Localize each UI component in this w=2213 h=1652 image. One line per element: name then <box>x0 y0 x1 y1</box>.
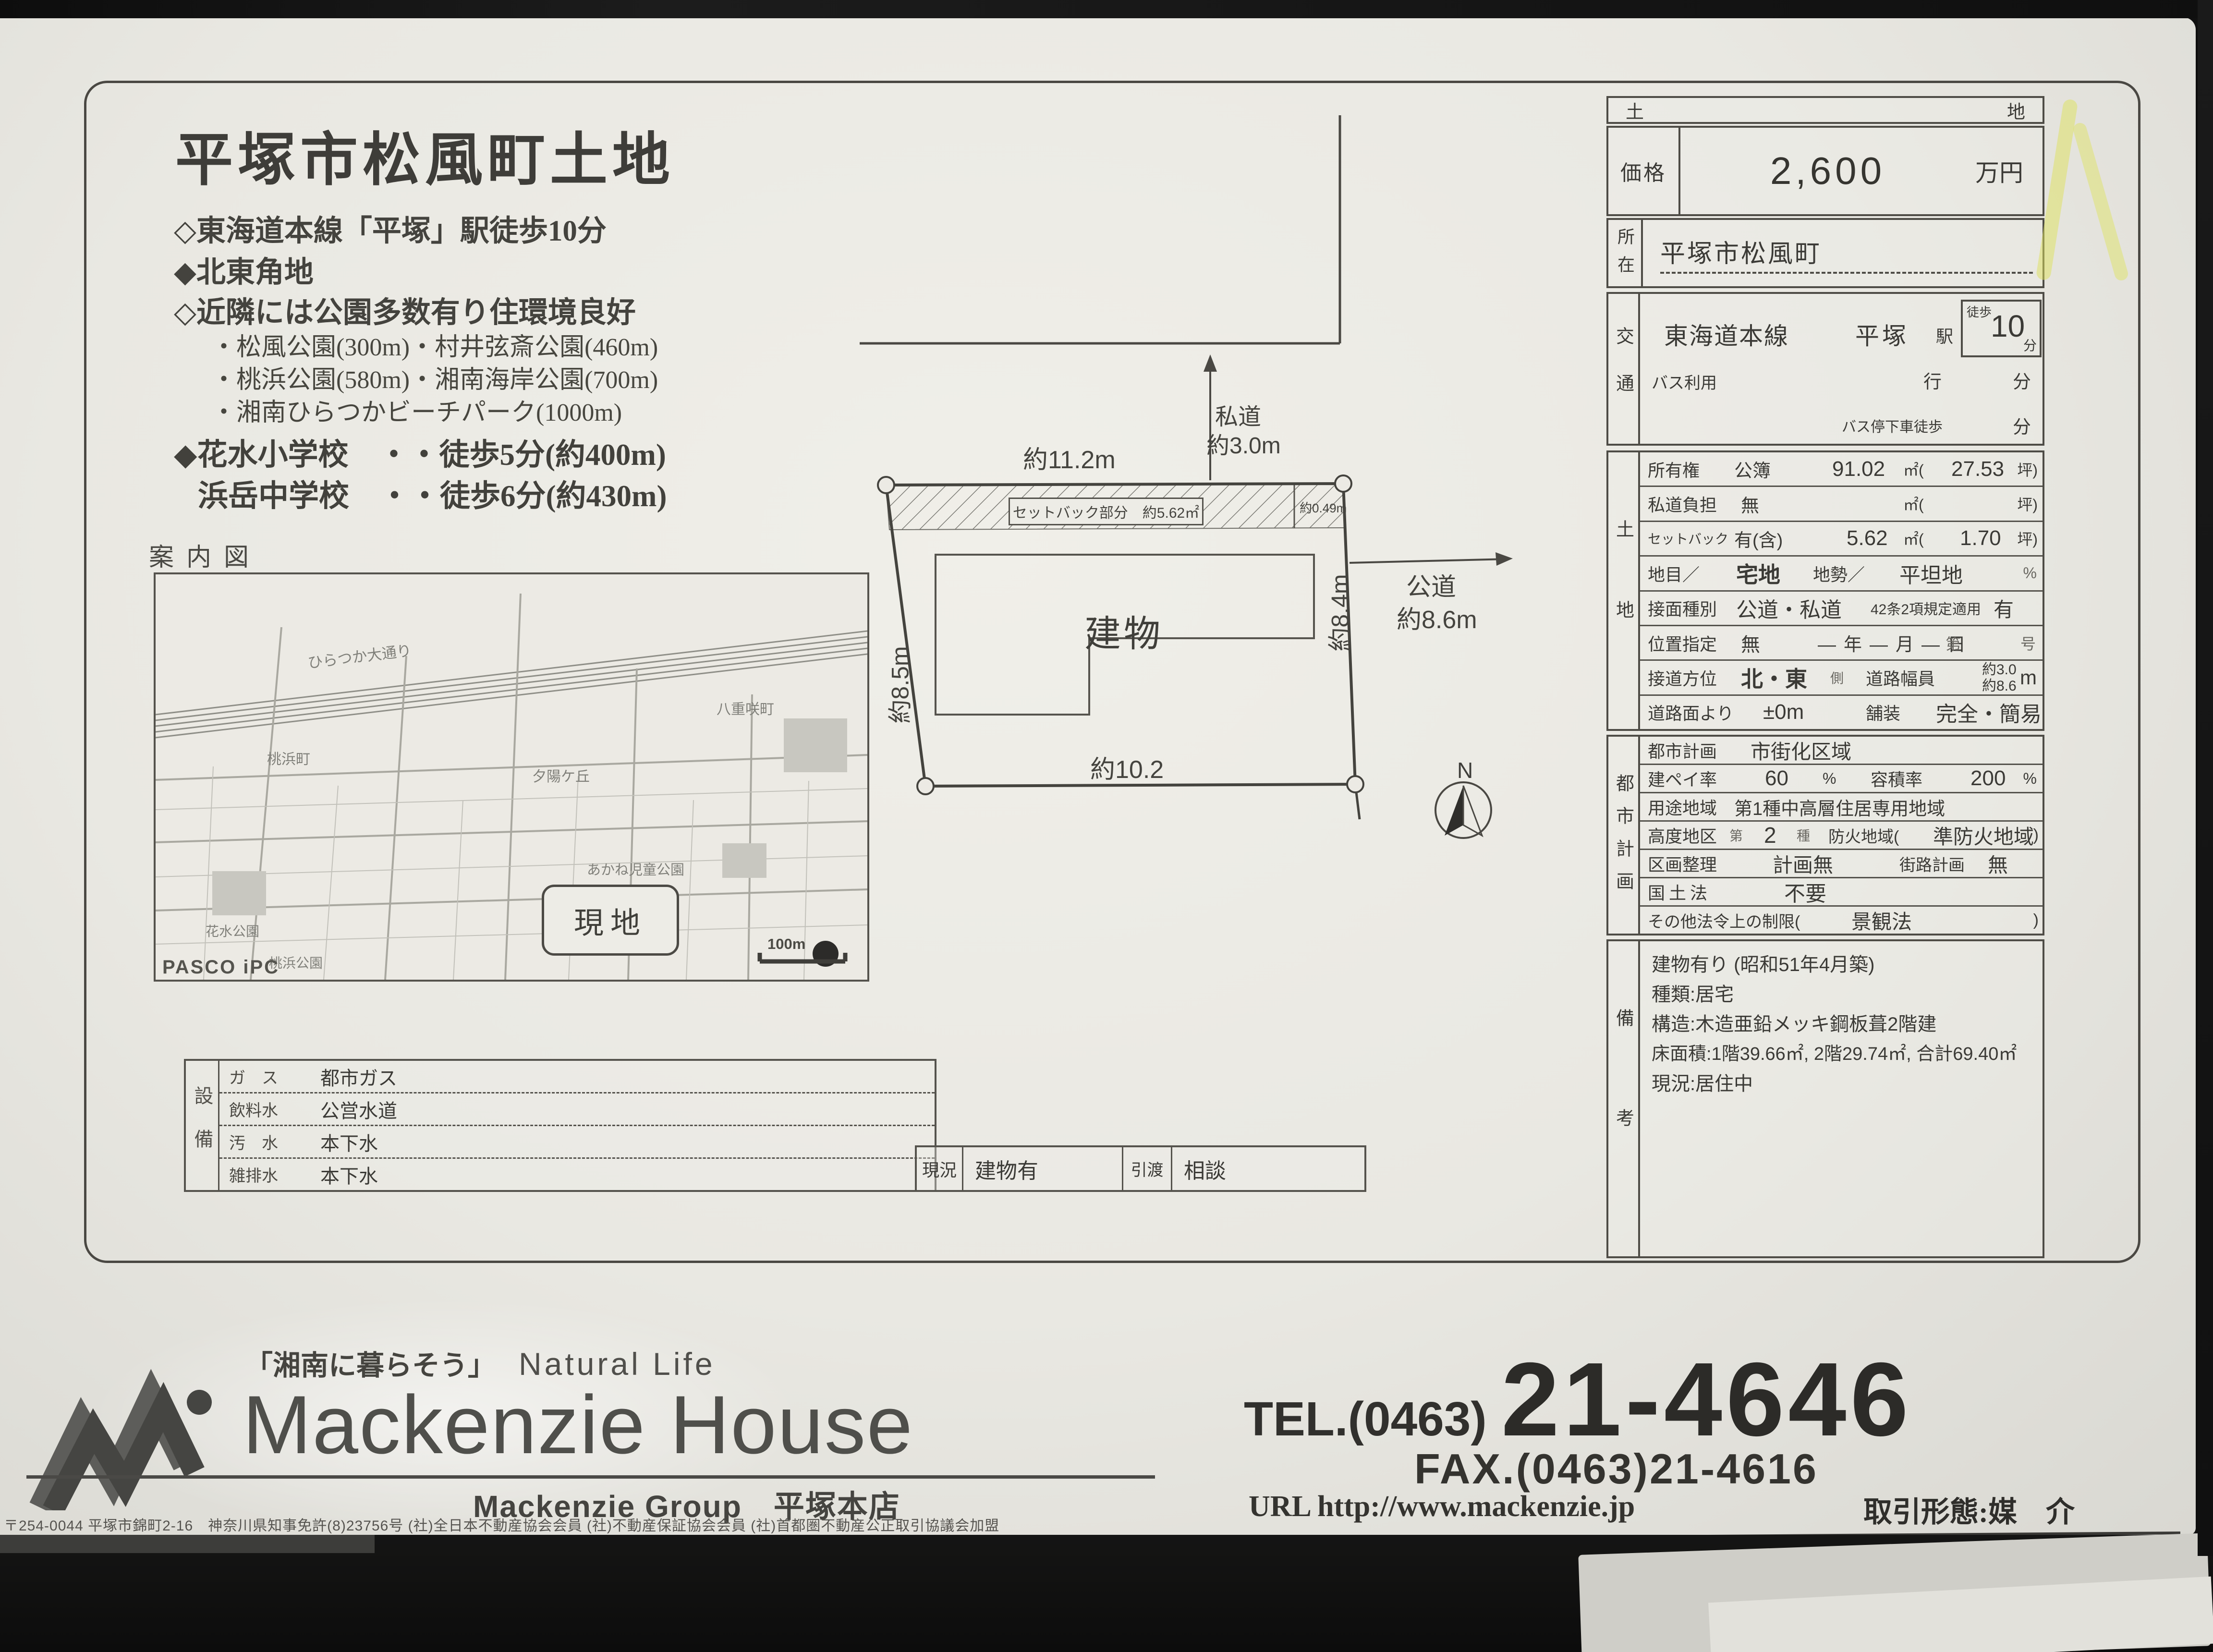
map-scale-label: 100m <box>767 935 805 953</box>
city-plan-table: 都市計画 都市計画 市街化区域 建ペイ率 60 % 容積率 200 % 用途地域… <box>1606 735 2044 935</box>
location-row: 所在 平塚市松風町 <box>1606 218 2044 288</box>
access-station: 平塚 <box>1855 317 1909 352</box>
status-row: 現況 建物有 引渡 相談 <box>915 1145 1366 1192</box>
cp-r6-value: 不要 <box>1784 876 1826 907</box>
bus-minutes-unit: 分 <box>2013 367 2031 393</box>
land-r1-type: 公簿 <box>1734 456 1771 482</box>
cp-r1-label: 都市計画 <box>1648 738 1717 763</box>
cp-r4-close-paren: ) <box>2033 826 2039 845</box>
private-road-width: 約3.0m <box>1206 426 1281 460</box>
access-station-suffix: 駅 <box>1936 323 1953 348</box>
land-r4-terrain: 平坦地 <box>1899 558 1963 589</box>
cp-r7-value: 景観法 <box>1851 906 1912 935</box>
land-r2-value: 無 <box>1741 491 1759 517</box>
phone-block: TEL.(0463) 21-4646 <box>1244 1340 1912 1460</box>
land-r6-no-suffix: 号 <box>2020 632 2036 654</box>
cp-r1-value: 市街化区域 <box>1751 736 1851 765</box>
land-r1-tsubo: 27.53 <box>1951 457 2004 481</box>
site-plan-drawing: N <box>840 96 1633 864</box>
land-r4-label: 地目／ <box>1648 561 1700 586</box>
location-label: 所在 <box>1608 220 1643 286</box>
bullet-parks: ◇近隣には公園多数有り住環境良好 <box>174 288 636 331</box>
land-r2-sqm-unit: ㎡( <box>1903 493 1924 515</box>
land-r7-widths: 約3.0約8.6 <box>1982 662 2017 694</box>
cp-r6-label: 国土法 <box>1648 879 1711 904</box>
building-label: 建物 <box>1047 604 1201 657</box>
cp-r4-shu: 種 <box>1797 826 1810 845</box>
land-r6-label: 位置指定 <box>1648 631 1717 656</box>
land-r7-direction: 北・東 <box>1741 662 1807 693</box>
utility-water-label: 飲料水 <box>229 1097 278 1121</box>
city-plan-label: 都市計画 <box>1608 737 1640 934</box>
dim-right-depth: 約8.4m <box>1321 574 1356 651</box>
park-list-2: ・桃浜公園(580m)・湘南海岸公園(700m) <box>211 359 658 395</box>
section-char-left: 土 <box>1626 97 1644 123</box>
cp-r5-value: 計画無 <box>1773 849 1833 878</box>
private-road-arrowhead <box>1204 354 1217 372</box>
section-char-right: 地 <box>2007 97 2025 123</box>
land-r8-paving: 完全・簡易 <box>1936 697 2042 728</box>
city-plan-row-other-laws: その他法令上の制限( 景観法 ) <box>1640 907 2043 934</box>
land-r3-tsubo-unit: 坪) <box>2017 527 2038 549</box>
railway-lines <box>156 631 867 738</box>
map-park-hanamizu: 花水公園 <box>206 921 259 940</box>
city-plan-row-ratios: 建ペイ率 60 % 容積率 200 % <box>1640 765 2043 793</box>
map-district-momohama: 桃浜町 <box>267 747 310 768</box>
cp-r2-bcr: 60 <box>1765 766 1788 790</box>
cp-r7-open: その他法令上の制限( <box>1648 909 1800 932</box>
bus-stop-walk-label: バス停下車徒歩 <box>1842 415 1943 436</box>
land-row-setback: セットバック 有(含) 5.62 ㎡( 1.70 坪) <box>1640 522 2043 557</box>
land-row-position-designation: 位置指定 無 ―年―月―日 第 号 <box>1640 626 2043 661</box>
tel-prefix: TEL.(0463) <box>1244 1392 1487 1447</box>
company-name: Mackenzie House <box>243 1377 913 1472</box>
land-r1-sqm-unit: ㎡( <box>1903 458 1924 480</box>
land-r1-tsubo-unit: 坪) <box>2017 458 2038 480</box>
park-list-3: ・湘南ひらつかビーチパーク(1000m) <box>211 392 622 428</box>
cp-r4-fire-value: 準防火地域 <box>1933 821 2034 850</box>
public-road-arrowhead <box>1496 552 1513 566</box>
land-section-header: 土 地 <box>1606 96 2044 124</box>
status-handover-value: 相談 <box>1184 1154 1226 1184</box>
remarks-line-4: 床面積:1階39.66㎡, 2階29.74㎡, 合計69.40㎡ <box>1652 1039 2043 1069</box>
cp-r4-class: 2 <box>1764 822 1776 848</box>
city-plan-row-zone: 都市計画 市街化区域 <box>1640 737 2043 765</box>
walk-label: 徒歩 <box>1967 303 1992 320</box>
land-r4-percent: % <box>2023 564 2037 582</box>
land-r4-terrain-label: 地勢／ <box>1813 561 1865 586</box>
public-road-arrow-line <box>1350 559 1508 563</box>
land-r6-value: 無 <box>1741 629 1760 657</box>
land-row-road-direction: 接道方位 北・東 側 道路幅員 約3.0約8.6 m <box>1640 661 2043 695</box>
desk-top-edge <box>0 0 2213 18</box>
city-plan-row-height-fire: 高度地区 第 2 種 防火地域( 準防火地域 ) <box>1640 822 2043 850</box>
photo-of-real-estate-flyer: 平塚市松風町土地 ◇東海道本線「平塚」駅徒歩10分 ◆北東角地 ◇近隣には公園多… <box>0 0 2213 1652</box>
status-current-label: 現況 <box>922 1156 957 1181</box>
status-current-value: 建物有 <box>975 1154 1038 1184</box>
bus-stop-minutes-unit: 分 <box>2013 412 2031 438</box>
tel-number: 21-4646 <box>1501 1340 1912 1460</box>
school-junior-high: 浜岳中学校 ・・徒歩6分(約430m) <box>198 472 667 515</box>
price-unit: 万円 <box>1975 154 2023 188</box>
land-r5-applies: 有 <box>1994 594 2014 623</box>
city-plan-row-use-district: 用途地域 第1種中高層住居専用地域 <box>1640 793 2043 822</box>
price-value: 2,600 <box>1680 149 1975 193</box>
land-r3-tsubo: 1.70 <box>1960 526 2001 550</box>
paper-bottom-edge-reflection <box>0 1535 375 1553</box>
land-r1-label: 所有権 <box>1648 457 1700 482</box>
utility-sewage-label: 汚 水 <box>229 1130 278 1154</box>
land-r3-value: 有(含) <box>1734 525 1783 552</box>
compass-needle-outline <box>1463 786 1482 836</box>
desk-right-edge <box>2198 0 2213 1556</box>
land-r8-paving-label: 舗装 <box>1866 700 1900 725</box>
land-r4-category: 宅地 <box>1736 558 1780 589</box>
remarks-line-1: 建物有り (昭和51年4月築) <box>1652 950 2043 980</box>
cp-r5-street-label: 街路計画 <box>1899 852 1965 875</box>
setback-label-text: セットバック部分 約5.62㎡ <box>1013 501 1199 522</box>
dim-bottom-width: 約10.2 <box>1090 749 1164 785</box>
location-value: 平塚市松風町 <box>1660 233 1822 269</box>
price-label: 価格 <box>1620 156 1666 186</box>
land-r7-label: 接道方位 <box>1648 665 1717 690</box>
fax-number: FAX.(0463)21-4616 <box>1414 1445 1818 1494</box>
utilities-table: 設備 ガ ス 都市ガス 飲料水 公営水道 汚 水 本下水 雑排水 本下水 <box>184 1059 936 1192</box>
land-row-ownership: 所有権 公簿 91.02 ㎡( 27.53 坪) <box>1640 452 2043 487</box>
utility-sewage-value: 本下水 <box>320 1128 378 1156</box>
access-label: 交通 <box>1608 294 1640 444</box>
land-r6-no-prefix: 第 <box>1945 632 1961 654</box>
walk-minutes: 10 <box>1991 308 2025 344</box>
cp-r2-far-label: 容積率 <box>1871 766 1922 791</box>
utility-water-value: 公営水道 <box>320 1095 397 1123</box>
cp-r2-far: 200 <box>1970 766 2006 790</box>
utility-drainage-value: 本下水 <box>320 1161 378 1189</box>
cp-r4-height-label: 高度地区 <box>1648 823 1717 848</box>
mackenzie-logo-icon <box>26 1366 233 1510</box>
utility-gas-value: 都市ガス <box>320 1063 397 1091</box>
land-row-road-level: 道路面より ±0m 舗装 完全・簡易 <box>1640 696 2043 729</box>
land-table-label: 土地 <box>1608 452 1640 729</box>
land-r2-tsubo-unit: 坪) <box>2017 493 2038 515</box>
city-plan-row-readjust: 区画整理 計画無 街路計画 無 <box>1640 850 2043 878</box>
land-r2-label: 私道負担 <box>1648 491 1717 516</box>
license-address-line: 〒254-0044 平塚市錦町2-16 神奈川県知事免許(8)23756号 (社… <box>4 1514 1329 1535</box>
map-park-akane: あかね児童公園 <box>587 859 684 879</box>
map-district-yaesaki: 八重咲町 <box>717 697 774 718</box>
map-source-logo: PASCO iPC <box>162 957 280 978</box>
bus-use-label: バス利用 <box>1652 370 1717 393</box>
land-row-category: 地目／ 宅地 地勢／ 平坦地 % <box>1640 557 2043 591</box>
bus-going-label: 行 <box>1923 367 1942 393</box>
utility-row-water: 飲料水 公営水道 <box>219 1093 935 1126</box>
cp-r5-street-value: 無 <box>1988 849 2008 878</box>
cp-r5-label: 区画整理 <box>1648 851 1717 876</box>
land-r8-label: 道路面より <box>1648 700 1734 725</box>
website-url: URL http://www.mackenzie.jp <box>1249 1490 1635 1524</box>
access-line-name: 東海道本線 <box>1664 317 1789 352</box>
remarks-line-5: 現況:居住中 <box>1652 1069 2043 1099</box>
land-r7-width-label: 道路幅員 <box>1866 665 1935 690</box>
walk-minutes-box: 徒歩 10 分 <box>1961 300 2042 357</box>
compass-needle-filled <box>1445 786 1463 836</box>
cp-r2-bcr-label: 建ペイ率 <box>1648 766 1717 791</box>
cp-r4-dai: 第 <box>1729 826 1743 845</box>
access-table: 交通 東海道本線 平塚 駅 徒歩 10 分 バス利用 行 分 バス停下車徒歩 分 <box>1606 292 2044 446</box>
bullet-station: ◇東海道本線「平塚」駅徒歩10分 <box>174 206 607 249</box>
map-district-yuhigaoka: 夕陽ケ丘 <box>532 765 590 786</box>
setback-label-box: セットバック部分 約5.62㎡ <box>1009 498 1204 525</box>
park-list-1: ・松風公園(300m)・村井弦斎公園(460m) <box>211 327 658 363</box>
guide-map-streets <box>156 574 867 980</box>
status-handover-label: 引渡 <box>1131 1157 1164 1180</box>
location-dashed-line <box>1660 272 2033 274</box>
utility-row-gas: ガ ス 都市ガス <box>219 1061 935 1093</box>
utility-gas-label: ガ ス <box>229 1065 278 1088</box>
dim-left-depth: 約8.5m <box>881 646 916 723</box>
price-row: 価格 2,600 万円 <box>1606 126 2044 216</box>
utilities-label: 設備 <box>186 1061 219 1190</box>
guide-map-label: 案内図 <box>149 537 261 573</box>
land-r7-width-2: 約8.6 <box>1982 678 2017 694</box>
street-lines <box>156 594 867 980</box>
footer-left-rule <box>26 1475 1155 1479</box>
cp-r3-value: 第1種中高層住居専用地域 <box>1734 794 1945 820</box>
land-r3-sqm-unit: ㎡( <box>1903 527 1924 549</box>
land-r5-article: 42条2項規定適用 <box>1871 597 1981 619</box>
land-r7-width-1: 約3.0 <box>1982 662 2017 678</box>
land-r8-level: ±0m <box>1763 700 1804 724</box>
walk-minutes-unit: 分 <box>2023 335 2037 354</box>
land-r1-sqm: 91.02 <box>1832 457 1885 481</box>
public-road-width: 約8.6m <box>1397 599 1477 635</box>
dim-top-width: 約11.2m <box>1023 439 1116 475</box>
tagline-english: Natural Life <box>519 1346 716 1382</box>
cp-r2-far-unit: % <box>2023 770 2037 788</box>
remarks-label: 備考 <box>1608 941 1640 1256</box>
land-row-private-road-share: 私道負担 無 ㎡( 坪) <box>1640 487 2043 522</box>
land-r3-label: セットバック <box>1648 529 1728 548</box>
land-r3-sqm: 5.62 <box>1847 526 1888 550</box>
cp-r3-label: 用途地域 <box>1648 794 1717 819</box>
land-r7-m-unit: m <box>2020 666 2037 689</box>
cp-r4-fire-label: 防火地域( <box>1828 824 1899 847</box>
remarks-line-3: 構造:木造亜鉛メッキ鋼板葺2階建 <box>1652 1009 2043 1039</box>
guide-map <box>154 572 869 982</box>
utility-row-drainage: 雑排水 本下水 <box>219 1159 935 1190</box>
land-r5-roads: 公道・私道 <box>1736 593 1842 623</box>
land-row-frontage-type: 接面種別 公道・私道 42条2項規定適用 有 <box>1640 592 2043 626</box>
utility-drainage-label: 雑排水 <box>229 1163 278 1186</box>
site-location-badge-text: 現地 <box>574 899 647 942</box>
setback-depth-label: 約0.49m <box>1300 498 1347 516</box>
remarks-line-2: 種類:居宅 <box>1652 980 2043 1009</box>
public-road-label: 公道 <box>1406 567 1456 603</box>
land-r7-side: 側 <box>1830 668 1844 687</box>
site-location-badge: 現地 <box>542 885 679 956</box>
utility-row-sewage: 汚 水 本下水 <box>219 1126 935 1159</box>
deal-type: 取引形態:媒 介 <box>1863 1489 2075 1531</box>
city-plan-row-national-land: 国土法 不要 <box>1640 878 2043 907</box>
land-table: 土地 所有権 公簿 91.02 ㎡( 27.53 坪) 私道負担 無 ㎡( 坪)… <box>1606 450 2044 731</box>
bullet-corner-lot: ◆北東角地 <box>174 248 314 291</box>
cp-r7-close: ) <box>2033 911 2039 930</box>
cp-r2-bcr-unit: % <box>1823 770 1836 788</box>
compass-north-letter: N <box>1457 758 1473 783</box>
land-r5-label: 接面種別 <box>1648 595 1717 620</box>
school-elementary: ◆花水小学校 ・・徒歩5分(約400m) <box>174 430 666 474</box>
remarks-table: 備考 建物有り (昭和51年4月築) 種類:居宅 構造:木造亜鉛メッキ鋼板葺2階… <box>1606 939 2044 1258</box>
